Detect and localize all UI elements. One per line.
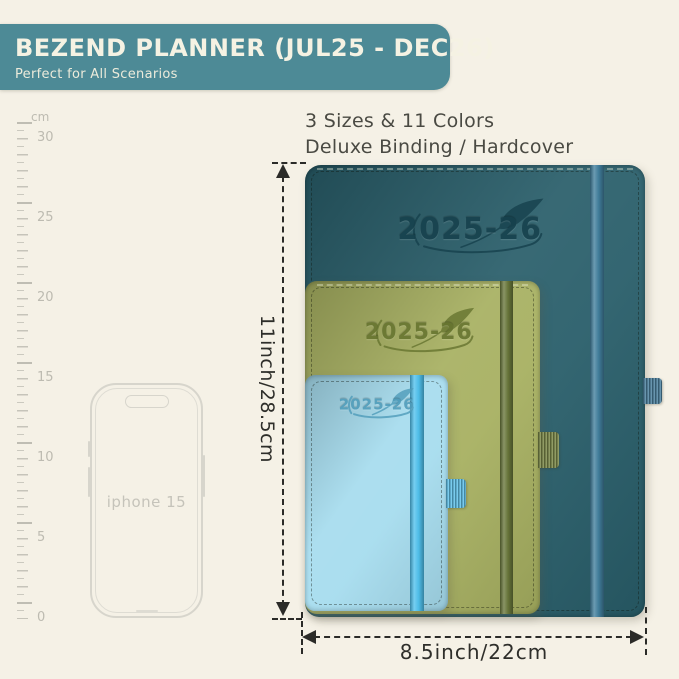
page-subtitle: Perfect for All Scenarios	[15, 67, 450, 82]
feature-line-sizes: 3 Sizes & 11 Colors	[305, 108, 573, 134]
ruler-label-20: 20	[37, 290, 54, 305]
width-dim-right-tick	[645, 607, 647, 655]
header-banner: BEZEND PLANNER (JUL25 - DEC26) Perfect f…	[0, 24, 450, 90]
pen-loop	[643, 378, 662, 404]
pen-loop	[538, 432, 559, 468]
feature-line-binding: Deluxe Binding / Hardcover	[305, 134, 573, 160]
iphone-volume-button-1	[88, 441, 90, 457]
year-logo: 2025-26	[398, 195, 550, 257]
arrow-left-icon	[302, 630, 316, 644]
year-logo: 2025-26	[365, 305, 479, 355]
ruler-label-10: 10	[37, 450, 54, 465]
ruler-label-25: 25	[37, 210, 54, 225]
height-dim-bottom-tick	[272, 618, 302, 620]
year-text: 2025-26	[397, 211, 542, 246]
width-dimension-label: 8.5inch/22cm	[400, 640, 548, 664]
arrow-up-icon	[276, 164, 290, 178]
arrow-down-icon	[276, 602, 290, 616]
elastic-band	[590, 165, 604, 617]
year-text: 2025-26	[339, 395, 415, 413]
stitching-top	[317, 284, 528, 286]
ruler-label-0: 0	[37, 610, 45, 625]
year-text: 2025-26	[365, 320, 473, 345]
year-logo: 2025-26	[341, 386, 417, 420]
iphone-side-button	[203, 455, 205, 497]
planner-small: 2025-26	[305, 375, 448, 611]
iphone-port	[136, 610, 158, 612]
feature-text: 3 Sizes & 11 Colors Deluxe Binding / Har…	[305, 108, 573, 160]
iphone-dynamic-island	[125, 395, 169, 408]
product-image: BEZEND PLANNER (JUL25 - DEC26) Perfect f…	[0, 0, 679, 679]
iphone-label: iphone 15	[92, 493, 201, 511]
arrow-right-icon	[630, 630, 644, 644]
width-dim-line	[314, 636, 632, 638]
cm-ruler: cm 30 25 20 15 10 5 0	[17, 122, 69, 619]
ruler-major-ticks	[17, 122, 32, 619]
height-dimension-label: 11inch/28.5cm	[256, 315, 278, 463]
ruler-label-30: 30	[37, 130, 54, 145]
height-dim-line	[282, 176, 284, 606]
page-title: BEZEND PLANNER (JUL25 - DEC26)	[15, 34, 450, 62]
ruler-unit-label: cm	[31, 110, 49, 124]
pen-loop	[446, 479, 466, 508]
stitching-top	[317, 168, 633, 170]
iphone-volume-button-2	[88, 467, 90, 497]
iphone-outline: iphone 15	[90, 383, 203, 618]
ruler-label-5: 5	[37, 530, 45, 545]
ruler-label-15: 15	[37, 370, 54, 385]
elastic-band	[500, 281, 513, 614]
